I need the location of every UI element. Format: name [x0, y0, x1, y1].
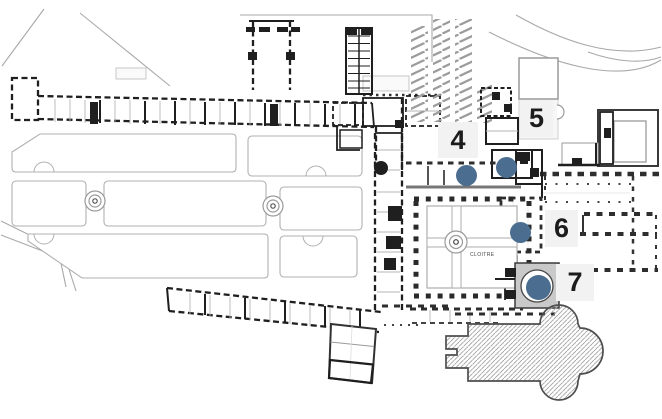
map-marker-dot-5[interactable]: [496, 157, 517, 178]
southwest-annex: [329, 324, 376, 383]
map-marker-label-6[interactable]: 6: [545, 210, 578, 247]
map-marker-label-7[interactable]: 7: [556, 264, 594, 301]
garden-fountain-east: [263, 196, 283, 216]
map-marker-dot-6[interactable]: [510, 222, 531, 243]
cloister-fountain: [445, 231, 467, 253]
map-marker-dot-7[interactable]: [526, 275, 551, 300]
right-edge-building: [558, 110, 658, 166]
map-marker-label-4[interactable]: 4: [438, 122, 478, 158]
southwest-wing: [167, 288, 381, 383]
garden-parterres: [12, 134, 362, 278]
tree-rows: [411, 19, 492, 123]
west-range: [374, 133, 402, 313]
entrance-gate: [246, 21, 300, 90]
map-marker-label-5[interactable]: 5: [520, 100, 553, 137]
map-marker-dot-4[interactable]: [456, 165, 477, 186]
garden-fountain-west: [85, 191, 105, 211]
cloister-label: CLOITRE: [470, 252, 495, 258]
wing-room-ticks: [55, 99, 355, 127]
site-plan-canvas: CLOITRE 4567: [0, 0, 662, 419]
